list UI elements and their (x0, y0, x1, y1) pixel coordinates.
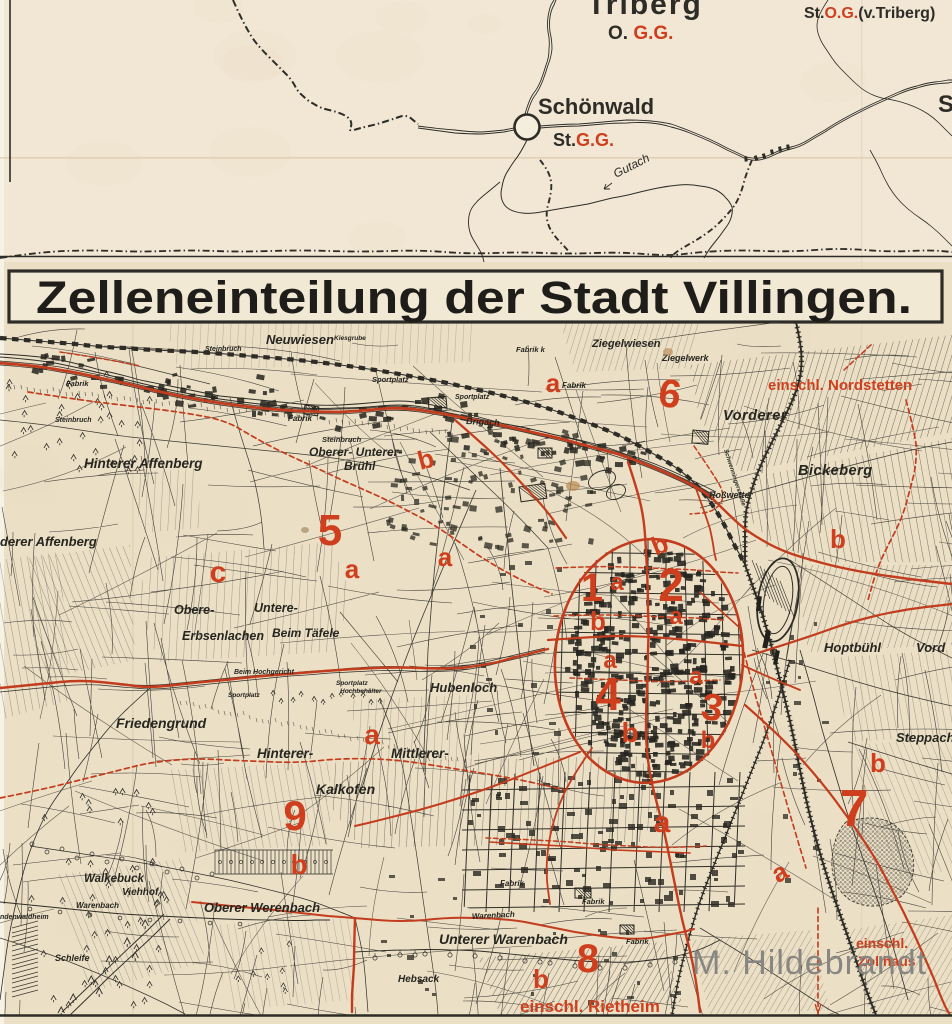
svg-text:Fabrik: Fabrik (562, 381, 587, 390)
svg-text:Hochbehälter: Hochbehälter (340, 688, 382, 695)
svg-text:Hinterer-: Hinterer- (257, 746, 314, 761)
svg-text:Hebsack: Hebsack (398, 974, 440, 985)
svg-text:b: b (830, 524, 846, 554)
svg-text:c: c (210, 556, 227, 589)
svg-text:a: a (654, 806, 671, 839)
svg-text:Hoptbühl: Hoptbühl (824, 640, 881, 655)
svg-text:8: 8 (577, 937, 599, 981)
svg-text:Fabrik: Fabrik (66, 379, 89, 388)
svg-text:4: 4 (595, 668, 621, 720)
svg-text:a: a (438, 542, 453, 572)
svg-text:Beim Hochgericht: Beim Hochgericht (234, 669, 295, 676)
svg-text:St.G.G.: St.G.G. (553, 130, 614, 150)
svg-text:Fabrik: Fabrik (626, 937, 649, 946)
svg-text:Vorderer: Vorderer (723, 408, 788, 424)
svg-text:Vord: Vord (916, 640, 946, 655)
svg-text:Schönwald: Schönwald (538, 94, 654, 119)
svg-text:Beim Täfele: Beim Täfele (272, 626, 340, 640)
svg-text:b: b (590, 606, 606, 636)
svg-text:Walkebuck: Walkebuck (84, 873, 144, 885)
svg-text:Oberer Werenbach: Oberer Werenbach (204, 900, 320, 915)
svg-text:Brigach: Brigach (466, 416, 500, 428)
svg-text:St.O.G.(v.Triberg): St.O.G.(v.Triberg) (804, 5, 935, 22)
svg-text:Warenbach: Warenbach (76, 901, 119, 910)
svg-text:Kalkofen: Kalkofen (316, 781, 375, 797)
svg-text:Steinbruch: Steinbruch (322, 435, 362, 444)
svg-text:Unterer Warenbach: Unterer Warenbach (439, 931, 568, 947)
svg-text:Viehhof: Viehhof (122, 887, 160, 898)
svg-text:Ziegelwiesen: Ziegelwiesen (591, 338, 661, 350)
svg-text:Schleife: Schleife (55, 953, 90, 963)
svg-text:S: S (938, 91, 952, 118)
svg-text:Triberg: Triberg (587, 0, 703, 21)
svg-text:Hinterer Affenberg: Hinterer Affenberg (84, 456, 203, 471)
svg-text:9: 9 (283, 792, 306, 839)
svg-text:derer Affenberg: derer Affenberg (0, 534, 97, 549)
svg-text:a: a (669, 603, 683, 630)
svg-text:ndenwaldheim: ndenwaldheim (0, 914, 49, 921)
svg-text:M. Hildebrandt: M. Hildebrandt (692, 944, 927, 982)
svg-text:Sportplatz: Sportplatz (228, 692, 261, 699)
svg-text:Erbsenlachen: Erbsenlachen (182, 629, 264, 643)
svg-text:Fabrik: Fabrik (288, 414, 313, 423)
svg-text:b: b (290, 849, 307, 880)
svg-text:b: b (870, 748, 886, 778)
svg-text:b: b (701, 727, 716, 754)
svg-text:Mittlerer-: Mittlerer- (391, 746, 449, 761)
svg-text:7: 7 (840, 780, 869, 838)
svg-text:a: a (345, 554, 360, 584)
svg-text:Untere-: Untere- (254, 601, 298, 615)
svg-text:5: 5 (318, 506, 342, 555)
svg-text:Kiesgrube: Kiesgrube (334, 335, 366, 342)
svg-text:O. G.G.: O. G.G. (608, 23, 673, 44)
svg-text:Fabrik: Fabrik (500, 879, 525, 888)
svg-text:a: a (546, 368, 561, 398)
svg-text:Steppach: Steppach (896, 730, 952, 745)
svg-text:a: a (610, 569, 624, 596)
svg-text:Oberer- Unterer-: Oberer- Unterer- (309, 445, 402, 459)
svg-text:Sportplatz: Sportplatz (455, 394, 490, 401)
svg-text:a: a (689, 663, 703, 690)
svg-text:Sportplatz: Sportplatz (336, 680, 369, 687)
svg-text:Steinbruch: Steinbruch (205, 346, 242, 353)
svg-text:a: a (364, 719, 380, 750)
svg-text:einschl. Nordstetten: einschl. Nordstetten (768, 377, 912, 394)
svg-text:Friedengrund: Friedengrund (116, 715, 207, 731)
svg-text:Brühl: Brühl (344, 459, 376, 473)
svg-text:b: b (533, 964, 549, 994)
svg-text:einschl. Rietheim: einschl. Rietheim (520, 997, 660, 1016)
svg-text:Zelleneinteilung der Stadt Vil: Zelleneinteilung der Stadt Villingen. (36, 272, 912, 323)
svg-text:1: 1 (581, 566, 603, 610)
svg-text:Bickeberg: Bickeberg (798, 463, 873, 479)
svg-text:Fabrik k: Fabrik k (516, 345, 546, 354)
svg-text:Fabrik: Fabrik (582, 897, 605, 906)
svg-text:Hubenloch: Hubenloch (430, 680, 497, 695)
svg-text:Obere-: Obere- (174, 603, 214, 617)
svg-text:b: b (621, 717, 638, 748)
svg-text:Steinbruch: Steinbruch (55, 417, 92, 424)
svg-text:Sportplatz: Sportplatz (372, 375, 409, 384)
svg-text:Neuwiesen: Neuwiesen (266, 332, 334, 347)
